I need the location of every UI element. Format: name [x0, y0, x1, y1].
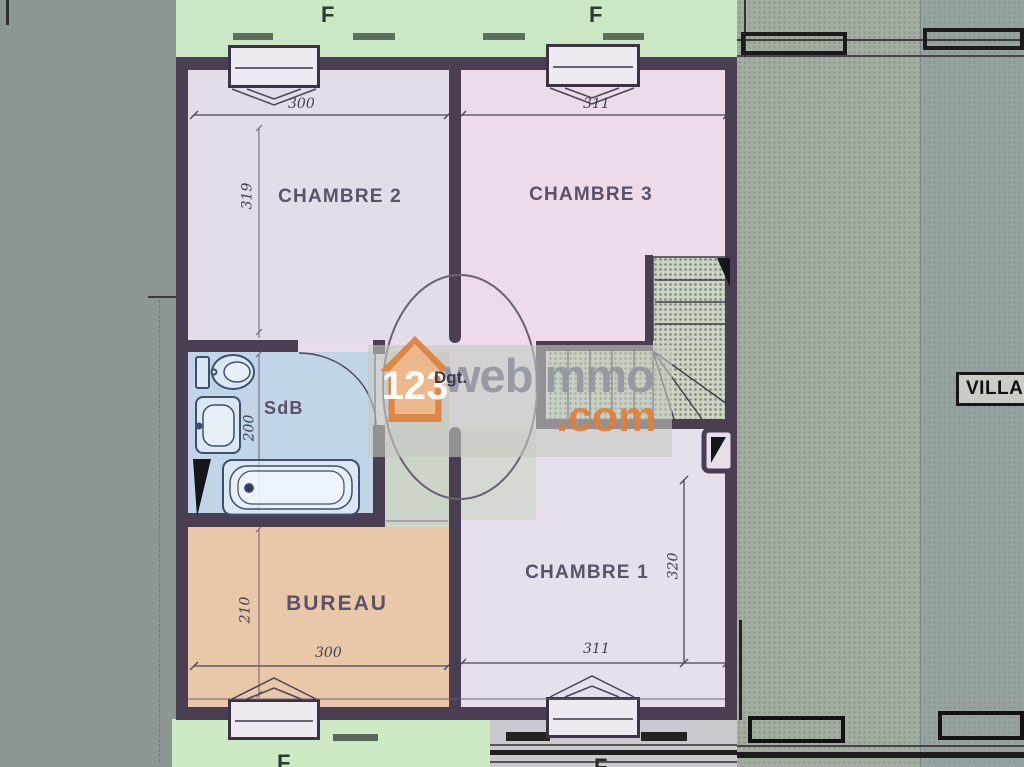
wall-sdb-top	[176, 340, 298, 352]
window-bureau	[228, 699, 320, 740]
adjacent-wall-line	[737, 745, 1024, 747]
room-label-chambre1: CHAMBRE 1	[507, 562, 667, 584]
facade-label-f-bottom-right: F	[594, 754, 607, 767]
garden-strip-bottom	[172, 719, 490, 767]
shutter-sill	[506, 732, 550, 741]
room-label-dgt: Dgt.	[434, 368, 467, 388]
wall-exterior-right	[725, 57, 737, 720]
facade-label-f-top-right: F	[589, 2, 602, 28]
left-margin-dashed-line	[159, 300, 160, 762]
dim-sdb-height: 200	[241, 415, 257, 442]
adjacent-window-frame	[938, 711, 1024, 740]
top-left-tick-mark	[6, 0, 9, 25]
window-chambre3	[546, 44, 640, 87]
villa-label-box: VILLA	[956, 372, 1024, 406]
shutter-sill	[641, 732, 687, 741]
shutter-sill	[333, 734, 378, 741]
window-chambre2	[228, 45, 320, 88]
adjacent-wall-line	[737, 752, 1024, 758]
adjacent-window-frame	[748, 716, 845, 743]
room-label-chambre3: CHAMBRE 3	[511, 184, 671, 206]
window-chambre1	[546, 697, 640, 738]
adjacent-wall-line	[737, 55, 1024, 57]
shutter-sill	[233, 33, 273, 40]
left-margin-line	[148, 296, 176, 298]
adjacent-wall-line	[739, 620, 742, 720]
adjacent-window-frame	[923, 28, 1024, 50]
dim-chambre2-width: 300	[288, 96, 315, 112]
facade-line	[490, 750, 737, 755]
adjacent-window-frame	[741, 32, 847, 55]
wall-sdb-bottom	[176, 513, 385, 527]
room-label-bureau: BUREAU	[257, 592, 417, 616]
shutter-sill	[353, 33, 395, 40]
villa-label: VILLA	[966, 378, 1023, 400]
facade-label-f-bottom-left: F	[277, 750, 290, 767]
shutter-sill	[603, 33, 644, 40]
wall-center-lower	[449, 427, 461, 707]
watermark-brand-text: webimmo	[444, 352, 654, 399]
dim-bureau-height: 210	[237, 597, 253, 624]
room-bureau	[188, 527, 449, 707]
facade-line	[490, 744, 737, 746]
shutter-sill	[483, 33, 525, 40]
room-label-chambre2: CHAMBRE 2	[260, 186, 420, 208]
dim-chambre1-height: 320	[665, 553, 681, 580]
floor-plan-canvas: VILLA	[0, 0, 1024, 767]
wall-center-upper	[449, 70, 461, 343]
wall-stairs-left	[645, 255, 653, 351]
wall-exterior-left	[176, 57, 188, 720]
room-sdb	[188, 352, 373, 515]
facade-label-f-top-left: F	[321, 2, 334, 28]
room-label-sdb: SdB	[264, 398, 304, 419]
dim-chambre1-width: 311	[583, 641, 610, 657]
facade-line	[490, 761, 737, 763]
dim-chambre2-height: 319	[239, 183, 255, 210]
dim-chambre3-width: 311	[583, 96, 610, 112]
watermark-tld-text: .com	[556, 396, 656, 439]
dim-bureau-width: 300	[315, 645, 342, 661]
